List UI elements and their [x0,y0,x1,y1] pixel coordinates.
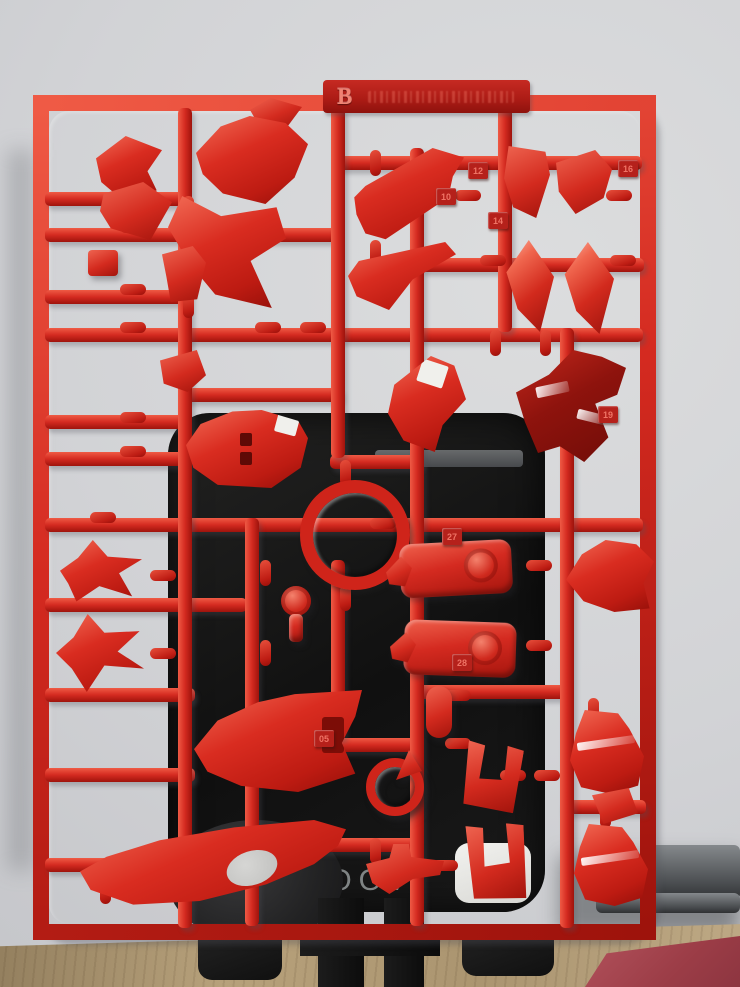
runner-rail [180,388,342,402]
gate-stub [610,255,636,266]
gate-stub [370,838,381,864]
gate-stub [445,738,471,749]
gate-stub [526,560,552,571]
part-small-tab [88,250,118,276]
gate-stub [90,512,116,523]
gate-stub [606,190,632,201]
gate-stub [300,322,326,333]
specular-highlight [535,380,570,398]
runner-molded-text [368,91,514,103]
part-number-tag: 12 [468,162,488,179]
part-number-tag: 10 [436,188,456,205]
gate-stub [150,570,176,581]
runner-letter: B [337,84,352,110]
knob-stem [289,614,303,642]
runner-rail [45,452,185,466]
specular-highlight [581,850,639,866]
specular-highlight [577,735,635,751]
stand-post-crossbar [300,938,440,956]
vent-detail [240,452,252,465]
gate-stub [526,640,552,651]
part-number-tag: 16 [618,160,638,177]
part-number-tag: 27 [442,528,462,545]
gate-stub [260,560,271,586]
gate-stub [120,322,146,333]
gate-stub [480,255,506,266]
gate-stub [534,770,560,781]
gate-stub [120,412,146,423]
part-hook-ring [360,748,424,808]
gate-stub [120,446,146,457]
gate-stub [255,322,281,333]
runner-rail [45,598,247,612]
knob-head [281,586,311,616]
stand-metal-rod [648,845,740,900]
part-capsule [426,686,452,738]
part-number-tag: 14 [488,212,508,229]
part-number-tag: 19 [598,406,618,423]
runner-rail [178,108,192,528]
runner-label-plate: B [323,80,530,113]
wall-shadow-left [8,150,34,870]
gate-stub [150,648,176,659]
part-knob-joint [278,586,314,646]
gate-stub [490,330,501,356]
runner-rail [45,768,195,782]
part-number-tag: 28 [452,654,472,671]
runner-rail [45,415,185,429]
runner-rail [331,108,345,458]
runner-rail [45,290,185,304]
vent-detail [240,433,252,446]
gate-stub [120,284,146,295]
photo-scene: QOOvi B [0,0,740,987]
gate-stub [455,190,481,201]
gate-stub [260,640,271,666]
runner-rail [45,688,195,702]
part-forearm [389,614,521,682]
gate-stub [540,330,551,356]
part-number-tag: 05 [314,730,334,747]
gate-stub [370,150,381,176]
